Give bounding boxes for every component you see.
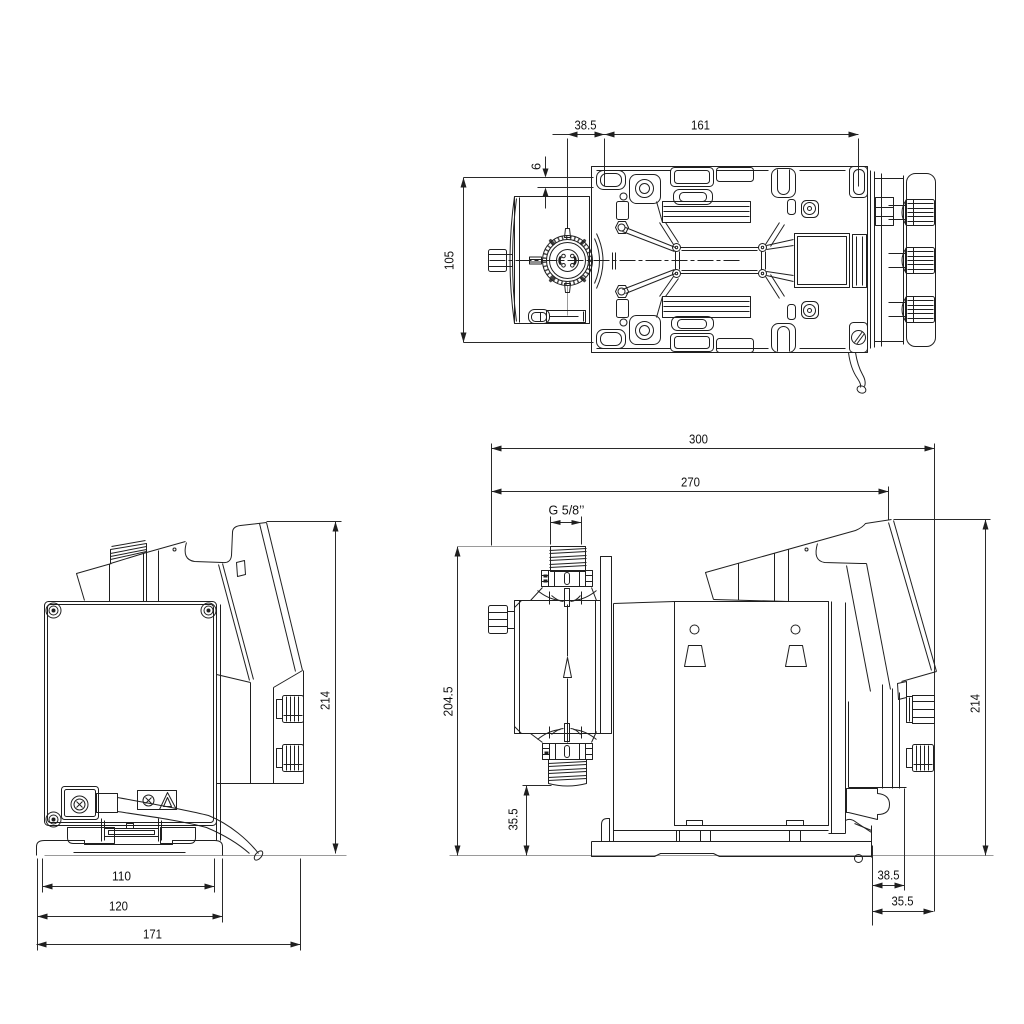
svg-text:35.5: 35.5 bbox=[892, 895, 914, 909]
svg-text:214: 214 bbox=[969, 694, 983, 713]
svg-text:38.5: 38.5 bbox=[878, 869, 900, 883]
svg-text:300: 300 bbox=[689, 433, 708, 447]
svg-text:110: 110 bbox=[112, 870, 131, 884]
svg-text:35.5: 35.5 bbox=[507, 808, 521, 830]
svg-text:6: 6 bbox=[530, 163, 544, 170]
svg-text:120: 120 bbox=[109, 900, 128, 914]
svg-text:270: 270 bbox=[681, 476, 700, 490]
svg-text:204.5: 204.5 bbox=[442, 686, 456, 716]
svg-text:G 5/8’’: G 5/8’’ bbox=[549, 504, 585, 518]
svg-text:161: 161 bbox=[691, 119, 710, 133]
svg-text:214: 214 bbox=[319, 691, 333, 710]
svg-text:38.5: 38.5 bbox=[575, 119, 597, 133]
svg-text:105: 105 bbox=[443, 251, 457, 270]
svg-text:171: 171 bbox=[143, 928, 162, 942]
